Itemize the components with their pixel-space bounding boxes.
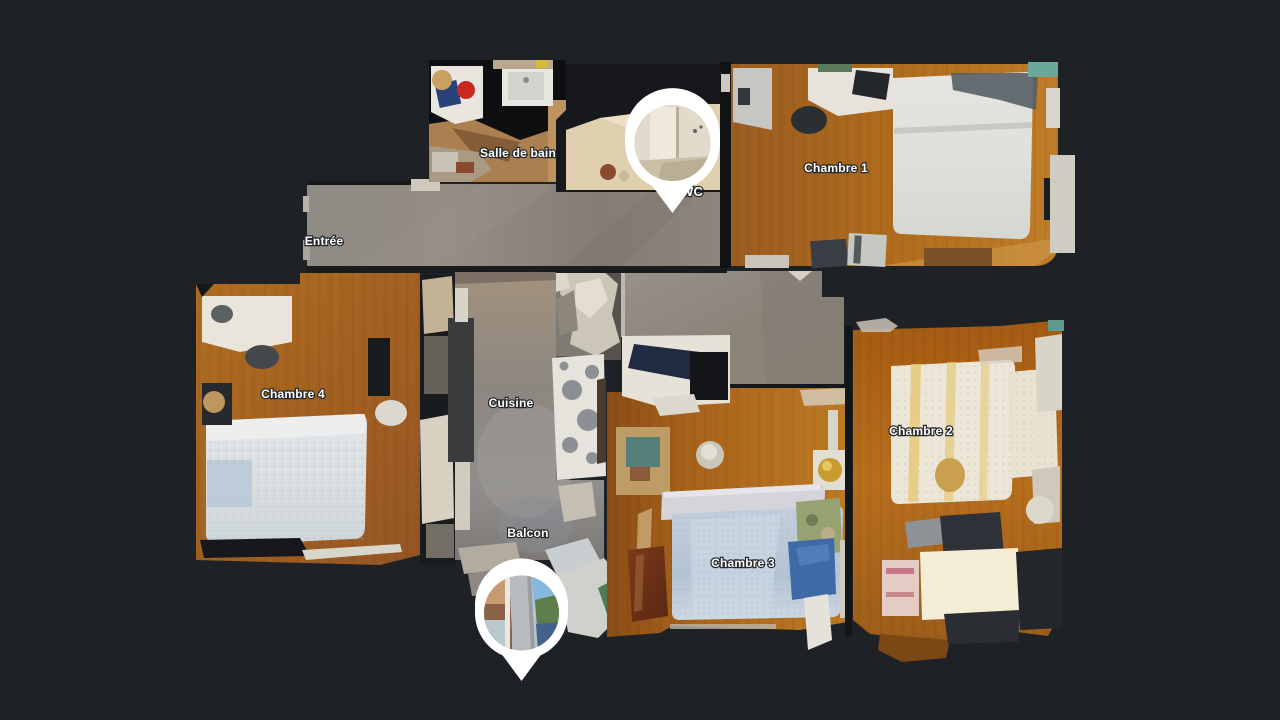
svg-text:Chambre 2: Chambre 2 bbox=[889, 424, 953, 438]
svg-text:Salle de bain: Salle de bain bbox=[480, 146, 556, 160]
svg-text:Entrée: Entrée bbox=[305, 234, 344, 248]
svg-text:Chambre 3: Chambre 3 bbox=[711, 556, 775, 570]
svg-text:Balcon: Balcon bbox=[507, 526, 548, 540]
svg-text:Chambre 4: Chambre 4 bbox=[261, 387, 325, 401]
svg-text:Cuisine: Cuisine bbox=[489, 396, 534, 410]
svg-text:Chambre 1: Chambre 1 bbox=[804, 161, 868, 175]
